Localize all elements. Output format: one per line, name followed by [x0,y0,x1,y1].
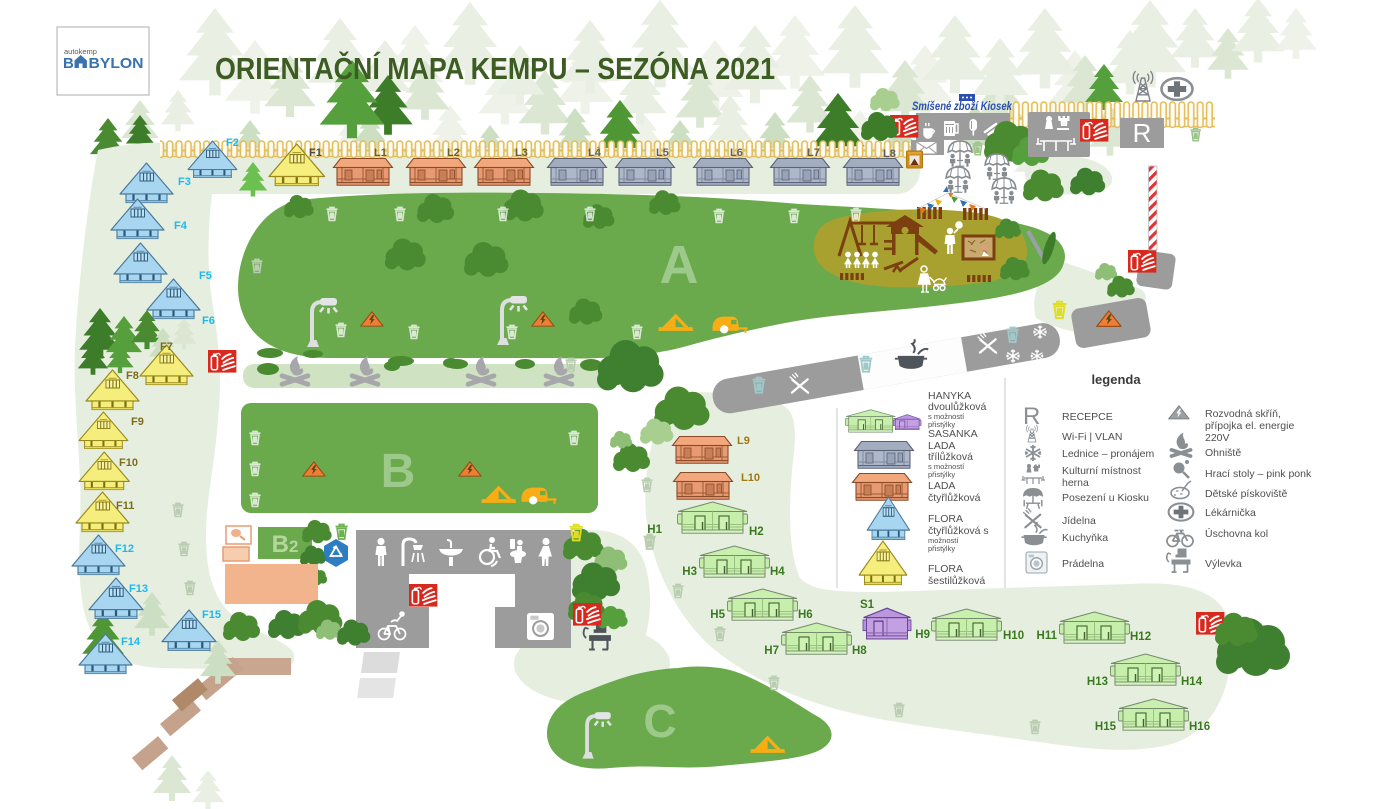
svg-text:Lednice – pronájem: Lednice – pronájem [1062,448,1154,460]
svg-text:H14: H14 [1181,676,1203,688]
svg-text:H9: H9 [915,629,930,641]
svg-text:C: C [643,695,676,747]
svg-text:Výlevka: Výlevka [1205,558,1242,570]
svg-text:přistýlky: přistýlky [928,470,955,479]
svg-text:Smíšené zboží Kiosek: Smíšené zboží Kiosek [912,101,1012,113]
svg-text:H12: H12 [1130,631,1151,643]
svg-text:H11: H11 [1037,630,1058,642]
svg-text:B: B [381,445,416,498]
svg-text:F8: F8 [126,370,139,382]
svg-text:H1: H1 [647,524,662,536]
svg-text:R: R [1133,118,1152,148]
svg-text:L6: L6 [730,147,743,159]
svg-text:L5: L5 [656,147,669,159]
svg-text:šestilůžková: šestilůžková [928,575,985,587]
svg-text:H2: H2 [749,526,764,538]
svg-text:Ohniště: Ohniště [1205,447,1241,459]
svg-text:čtyřlůžková: čtyřlůžková [928,492,981,504]
svg-text:H8: H8 [852,645,867,657]
svg-text:SASANKA: SASANKA [928,428,978,440]
svg-text:F7: F7 [160,341,173,353]
svg-text:L3: L3 [515,147,528,159]
svg-text:A: A [660,235,699,295]
svg-text:Hrací stoly – pink ponk: Hrací stoly – pink ponk [1205,468,1312,480]
svg-text:F11: F11 [116,500,134,512]
svg-text:H10: H10 [1003,630,1024,642]
svg-text:H16: H16 [1189,721,1210,733]
svg-text:H15: H15 [1095,721,1117,733]
svg-text:Dětské pískoviště: Dětské pískoviště [1205,488,1287,500]
svg-text:F9: F9 [131,416,144,428]
svg-text:legenda: legenda [1091,372,1141,387]
svg-text:Kulturní místnost: Kulturní místnost [1062,465,1141,477]
svg-text:F14: F14 [121,636,141,648]
svg-text:F2: F2 [226,137,239,149]
svg-text:H13: H13 [1087,676,1108,688]
svg-text:F1: F1 [309,147,322,159]
svg-text:220V: 220V [1205,432,1230,444]
svg-text:Wi-Fi | VLAN: Wi-Fi | VLAN [1062,431,1122,443]
svg-text:H7: H7 [764,645,779,657]
svg-text:F10: F10 [119,457,138,469]
svg-text:BYLON: BYLON [89,55,144,72]
svg-text:S1: S1 [860,599,875,611]
svg-text:LADA: LADA [928,480,955,492]
svg-text:B: B [63,55,74,72]
svg-text:F15: F15 [202,609,221,621]
svg-text:Rozvodná skříň,: Rozvodná skříň, [1205,408,1281,420]
svg-text:herna: herna [1062,477,1089,489]
svg-text:H3: H3 [682,566,697,578]
svg-text:Kuchyňka: Kuchyňka [1062,532,1108,544]
svg-text:L8: L8 [883,148,896,160]
svg-text:Úschovna kol: Úschovna kol [1205,527,1268,540]
svg-text:L7: L7 [807,147,820,159]
svg-text:L4: L4 [588,147,602,159]
svg-text:R: R [1023,403,1040,430]
svg-text:L1: L1 [374,147,387,159]
svg-text:ORIENTAČNÍ MAPA KEMPU – SEZÓNA: ORIENTAČNÍ MAPA KEMPU – SEZÓNA 2021 [215,50,775,86]
svg-text:přípojka el. energie: přípojka el. energie [1205,420,1294,432]
svg-text:Posezení u Kiosku: Posezení u Kiosku [1062,492,1149,504]
svg-text:FLORA: FLORA [928,563,963,575]
svg-text:H5: H5 [710,609,725,621]
svg-text:Prádelna: Prádelna [1062,558,1104,570]
svg-text:F12: F12 [115,543,134,555]
svg-text:F3: F3 [178,176,191,188]
svg-text:L9: L9 [737,435,750,447]
svg-text:Jídelna: Jídelna [1062,515,1096,527]
svg-text:F4: F4 [174,220,188,232]
svg-text:FLORA: FLORA [928,513,963,525]
svg-text:F13: F13 [129,583,148,595]
svg-text:přistýlky: přistýlky [928,544,955,553]
svg-text:F5: F5 [199,270,212,282]
svg-text:H4: H4 [770,566,785,578]
svg-text:F6: F6 [202,315,215,327]
svg-text:H6: H6 [798,609,813,621]
svg-text:RECEPCE: RECEPCE [1062,411,1113,423]
svg-text:Lékárnička: Lékárnička [1205,507,1256,519]
svg-text:L2: L2 [447,147,460,159]
svg-text:L10: L10 [741,472,760,484]
